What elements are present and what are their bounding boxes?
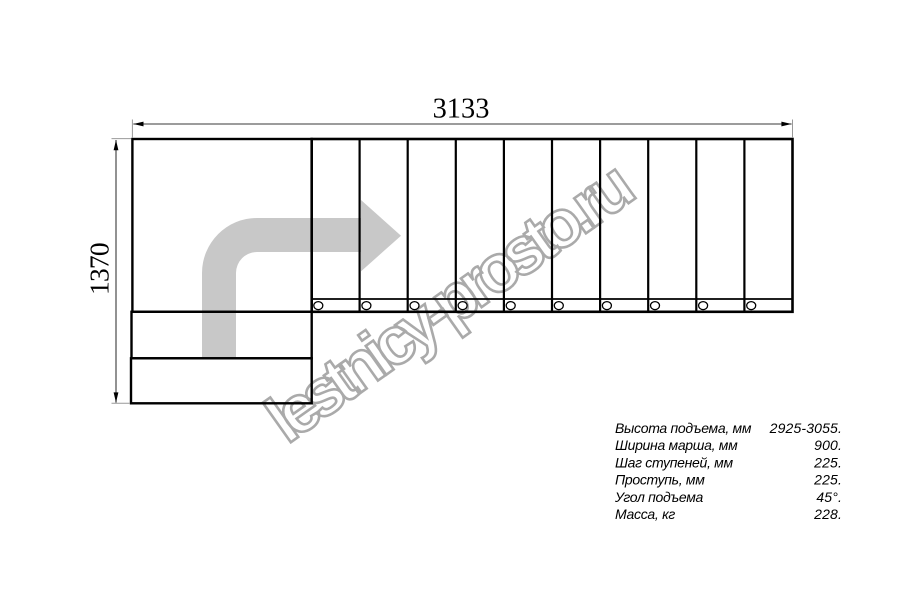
svg-text:Масса, кг: Масса, кг [615, 506, 675, 522]
svg-text:900.: 900. [814, 437, 842, 453]
svg-text:Ширина марша, мм: Ширина марша, мм [615, 437, 738, 453]
svg-text:45°.: 45°. [816, 489, 842, 505]
svg-text:3133: 3133 [433, 93, 490, 124]
svg-text:2925-3055.: 2925-3055. [769, 420, 842, 436]
svg-text:Шаг ступеней, мм: Шаг ступеней, мм [615, 454, 733, 470]
svg-text:Проступь, мм: Проступь, мм [615, 472, 705, 488]
svg-text:1370: 1370 [84, 243, 115, 295]
svg-text:Угол подъема: Угол подъема [614, 489, 704, 505]
svg-text:225.: 225. [813, 454, 842, 470]
svg-text:225.: 225. [813, 472, 842, 488]
svg-text:Высота подъема, мм: Высота подъема, мм [615, 420, 752, 436]
svg-text:228.: 228. [813, 506, 842, 522]
